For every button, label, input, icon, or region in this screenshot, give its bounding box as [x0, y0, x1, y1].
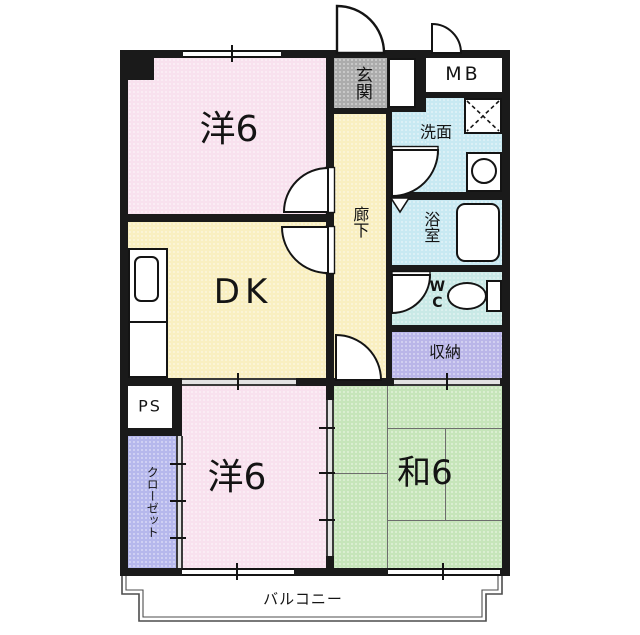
bath-door-triangle — [391, 198, 409, 212]
door-arcs-overlay — [0, 0, 640, 635]
entrance-door-arc — [337, 6, 384, 53]
washroom-door-arc — [392, 150, 438, 196]
dk-door-arc — [282, 227, 328, 273]
room-label-pipe-space: PS — [138, 399, 162, 416]
western-top-door-arc — [284, 168, 328, 212]
room-label-dk: DK — [214, 275, 272, 311]
room-label-closet: クローゼット — [146, 466, 159, 538]
meter-box-door-arc — [432, 24, 461, 53]
room-label-entrance: 玄関 — [352, 66, 370, 100]
room-label-western-top: 洋6 — [200, 111, 259, 149]
room-label-toilet: WC — [430, 279, 445, 311]
room-label-meter-box: MB — [445, 65, 480, 85]
room-label-balcony: バルコニー — [263, 592, 343, 608]
room-label-washroom: 洗面 — [420, 125, 452, 142]
room-label-storage: 収納 — [429, 345, 461, 362]
japanese-room-door-arc — [336, 335, 381, 380]
room-label-bathroom: 浴室 — [422, 211, 439, 243]
floor-plan: 洋6 DK 洋6 和6 玄関 MB 洗面 浴室 廊下 WC 収納 PS クローゼ… — [0, 0, 640, 635]
washing-machine-x — [467, 101, 499, 131]
toilet-door-arc — [392, 275, 430, 313]
room-label-western-bottom: 洋6 — [208, 459, 267, 497]
room-label-japanese: 和6 — [397, 456, 453, 492]
room-label-corridor: 廊下 — [351, 206, 368, 238]
